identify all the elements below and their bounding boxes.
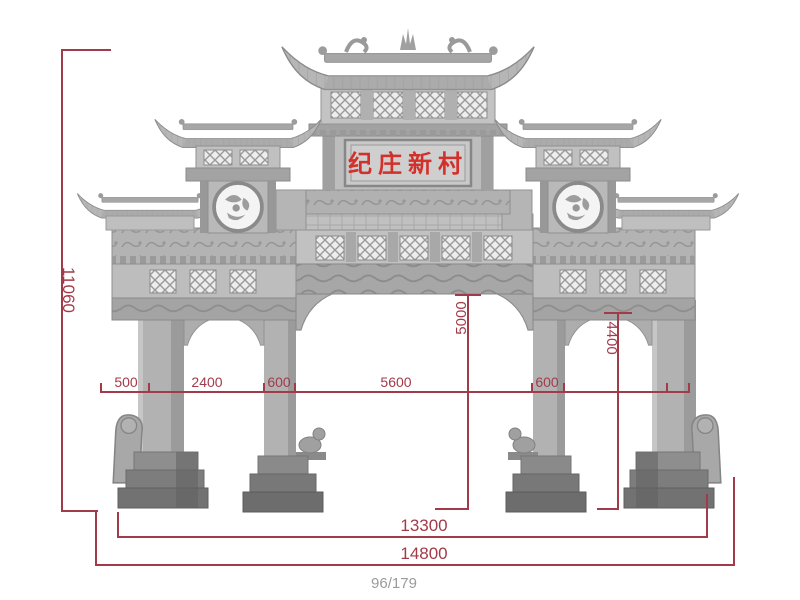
stone-archway-dimension-diagram: 纪庄新村 [0,0,800,600]
plaque-text: 纪庄新村 [348,149,468,178]
central-pavilion: 纪庄新村 [276,86,532,230]
dim-seg-5600-label: 5600 [365,373,427,391]
main-roof [282,46,534,89]
page-counter: 96/179 [344,575,444,592]
name-plaque: 纪庄新村 [345,140,471,186]
side-pavilion-left [186,146,290,233]
dim-total-height-label: 11060 [59,245,77,335]
second-tier-roof-left [155,119,321,147]
second-tier-roof-right [495,119,661,147]
dim-center-opening-height-label: 5000 [453,283,471,353]
dim-seg-500-label: 500 [103,373,149,391]
pillar-bases [113,415,721,512]
round-openwork-window-left [214,183,262,231]
round-openwork-window-right [554,183,602,231]
ridge-dragon-ornaments [346,28,470,52]
dim-total-width-label: 14800 [374,545,474,563]
dim-seg-600-right-label: 600 [525,373,569,391]
dim-seg-2400-label: 2400 [176,373,238,391]
dim-inner-width-label: 13300 [374,517,474,535]
dim-side-opening-height-label: 4400 [602,303,620,373]
archway-photo: 纪庄新村 [0,0,800,600]
side-pavilion-right [526,146,630,233]
dim-seg-600-left-label: 600 [257,373,301,391]
